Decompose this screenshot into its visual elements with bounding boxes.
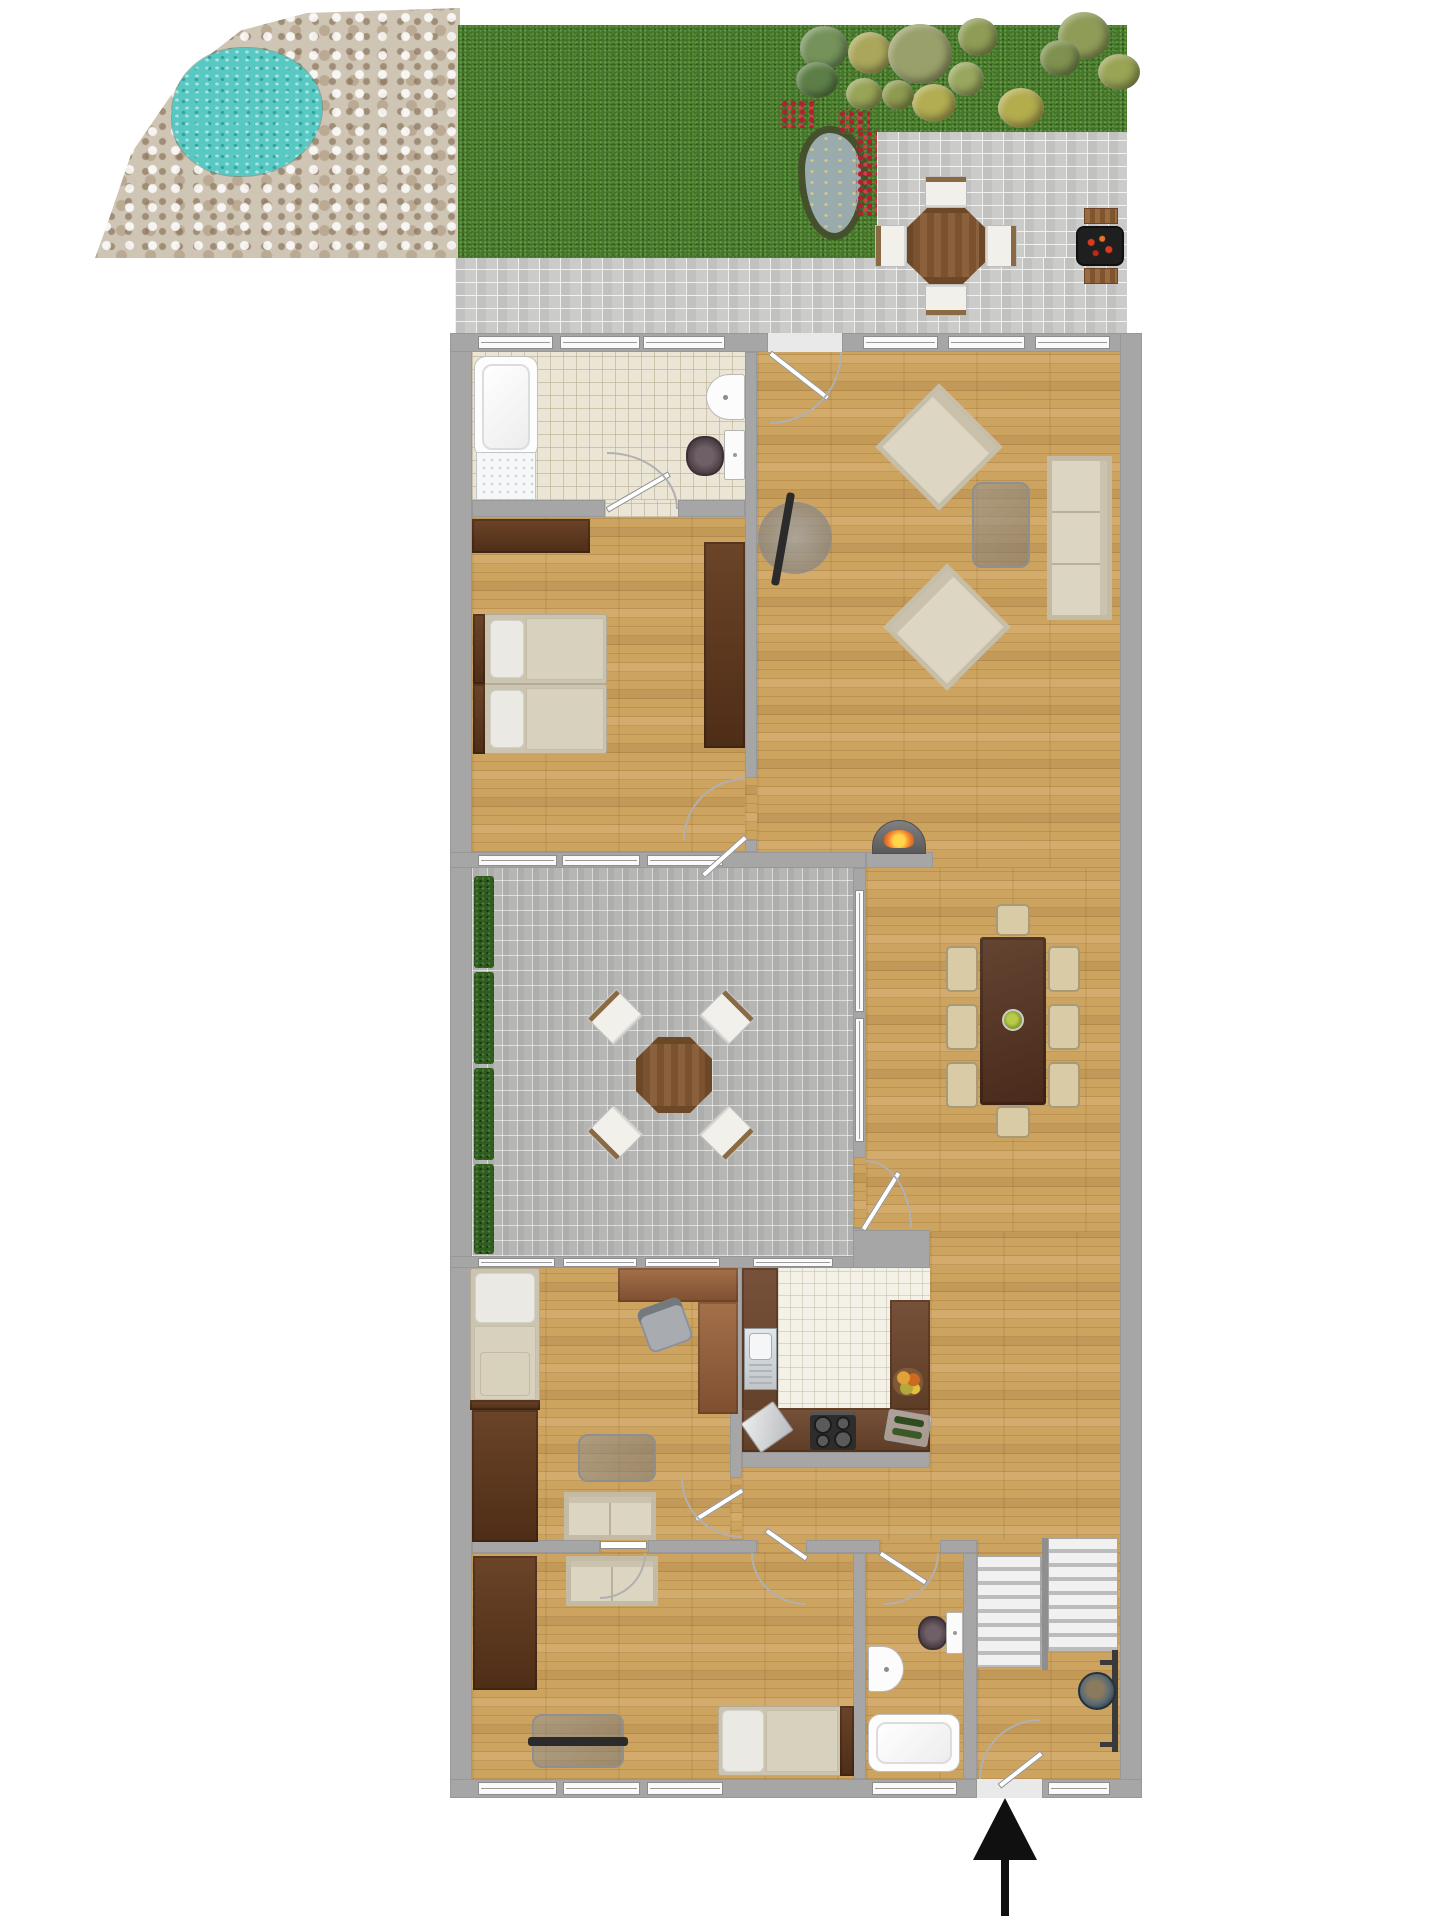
bathtub2 bbox=[868, 1714, 960, 1772]
tv-table-bar bbox=[528, 1737, 628, 1746]
bedroom-dresser bbox=[472, 519, 590, 553]
window-top-5 bbox=[948, 336, 1025, 349]
shrub-12 bbox=[998, 88, 1044, 128]
bed-1-pillow bbox=[490, 620, 524, 678]
kitchen-sink bbox=[744, 1328, 777, 1390]
doorway-fill-6 bbox=[880, 1540, 940, 1553]
stairs-divider bbox=[1042, 1538, 1048, 1670]
bed-2-headboard bbox=[473, 684, 485, 754]
fruit-bowl bbox=[893, 1368, 923, 1396]
dining-chair-w3 bbox=[946, 1062, 978, 1108]
stairs-flight-left bbox=[977, 1556, 1041, 1668]
bottomroom-wardrobe bbox=[473, 1556, 537, 1690]
shrub-2 bbox=[796, 62, 838, 98]
bathtub bbox=[474, 356, 538, 458]
stairs-flight-right bbox=[1048, 1538, 1118, 1652]
outdoor-chair-west bbox=[875, 225, 907, 267]
desk-top bbox=[618, 1268, 738, 1302]
window-bedroom-patio-1 bbox=[478, 855, 557, 866]
wall-kitchen-south bbox=[742, 1452, 930, 1468]
bathroom-sink bbox=[706, 374, 745, 420]
dining-chair-e3 bbox=[1048, 1062, 1080, 1108]
north-arrow-head bbox=[973, 1798, 1037, 1860]
paver-walkway bbox=[455, 258, 1127, 335]
outdoor-chair-south bbox=[925, 284, 967, 316]
sofa-three-seat bbox=[1047, 456, 1112, 620]
bedroom-wardrobe bbox=[704, 542, 745, 748]
toilet2-tank bbox=[946, 1612, 963, 1654]
bottom-bed-pillow bbox=[722, 1710, 764, 1772]
shrub-4 bbox=[888, 24, 952, 84]
pond-flowers-3 bbox=[856, 130, 878, 216]
north-arrow-stem bbox=[1001, 1858, 1009, 1916]
window-top-1 bbox=[478, 336, 553, 349]
window-patio-south-1 bbox=[478, 1258, 555, 1267]
window-top-4 bbox=[863, 336, 938, 349]
toilet2-seat bbox=[918, 1616, 948, 1650]
desk-side bbox=[698, 1302, 738, 1414]
shrub-3 bbox=[848, 32, 892, 74]
wall-mid-south-d bbox=[940, 1540, 977, 1553]
window-bedroom-patio-2 bbox=[562, 855, 640, 866]
office-loveseat bbox=[564, 1492, 656, 1540]
shrub-6 bbox=[948, 62, 984, 96]
hedge-row-3 bbox=[474, 1068, 494, 1160]
wall-right bbox=[1120, 333, 1142, 1798]
doorway-fill-2 bbox=[853, 1158, 866, 1228]
wall-bath-bedroom-east-a bbox=[745, 352, 757, 778]
office-bed-cushion bbox=[480, 1352, 530, 1396]
floor-plan-canvas bbox=[0, 0, 1440, 1920]
office-coffee-table bbox=[578, 1434, 656, 1482]
bed-2-blanket bbox=[526, 688, 604, 750]
wall-bottomroom-bath2 bbox=[853, 1553, 866, 1779]
dining-chair-n bbox=[996, 904, 1030, 936]
office-bed-pillow bbox=[475, 1273, 535, 1323]
hall-floor bbox=[930, 1232, 1120, 1553]
hedge-row-4 bbox=[474, 1164, 494, 1254]
dining-chair-e1 bbox=[1048, 946, 1080, 992]
shrub-9 bbox=[846, 78, 882, 110]
window-top-6 bbox=[1035, 336, 1110, 349]
bottom-bed-foot bbox=[840, 1706, 854, 1776]
window-patio-south-2 bbox=[563, 1258, 637, 1267]
doorway-fill-1 bbox=[745, 778, 757, 840]
coat-rack-arm-2 bbox=[1100, 1742, 1114, 1747]
shrub-8 bbox=[882, 80, 914, 110]
door-leaf-bottomroom-1 bbox=[600, 1541, 647, 1549]
toilet-seat bbox=[686, 436, 724, 476]
wall-fireplace-stub bbox=[866, 852, 933, 868]
grill-body bbox=[1076, 226, 1124, 266]
hedge-row-2 bbox=[474, 972, 494, 1064]
dining-chair-w2 bbox=[946, 1004, 978, 1050]
bottom-bed-blanket bbox=[766, 1710, 838, 1772]
dining-chair-e2 bbox=[1048, 1004, 1080, 1050]
office-bed-foot bbox=[470, 1400, 540, 1410]
pond-flowers-1 bbox=[780, 100, 816, 128]
toilet-tank bbox=[724, 430, 745, 480]
grill-shelf-bottom bbox=[1084, 268, 1118, 284]
wall-kitchen-north-stub bbox=[853, 1230, 930, 1268]
bed-1-headboard bbox=[473, 614, 485, 684]
window-bottom-4 bbox=[872, 1782, 957, 1795]
window-top-2 bbox=[560, 336, 640, 349]
outdoor-chair-east bbox=[985, 225, 1017, 267]
dining-chair-s bbox=[996, 1106, 1030, 1138]
wall-bath-bedroom-east-b bbox=[745, 840, 757, 852]
outdoor-chair-north bbox=[925, 176, 967, 208]
wall-left bbox=[450, 333, 472, 1798]
dining-chair-w1 bbox=[946, 946, 978, 992]
coat-rack-arm-1 bbox=[1100, 1660, 1114, 1665]
shrub-11 bbox=[1098, 54, 1140, 90]
round-glass-table bbox=[758, 502, 832, 574]
wall-mid-south-c bbox=[806, 1540, 880, 1553]
wall-mid-south-b bbox=[648, 1540, 757, 1553]
window-patio-east-2 bbox=[855, 1018, 864, 1142]
shrub-5 bbox=[958, 18, 998, 56]
window-bottom-2 bbox=[563, 1782, 640, 1795]
window-bottom-3 bbox=[647, 1782, 723, 1795]
grill-shelf-top bbox=[1084, 208, 1118, 224]
shower bbox=[476, 452, 536, 500]
hedge-row-1 bbox=[474, 876, 494, 968]
window-patio-east-1 bbox=[855, 890, 864, 1012]
shrub-7 bbox=[912, 84, 956, 122]
coffee-table-glass bbox=[972, 482, 1030, 568]
wall-bath2-entry bbox=[963, 1553, 977, 1779]
window-bottom-5 bbox=[1048, 1782, 1110, 1795]
window-patio-south-4 bbox=[753, 1258, 833, 1267]
wall-bathroom-south-b bbox=[678, 500, 745, 517]
window-bottom-1 bbox=[478, 1782, 557, 1795]
patio-table bbox=[636, 1037, 712, 1113]
coat-rack-basket bbox=[1078, 1672, 1116, 1710]
office-wardrobe bbox=[472, 1410, 538, 1542]
bed-1-blanket bbox=[526, 618, 604, 680]
bed-2-pillow bbox=[490, 690, 524, 748]
window-top-3 bbox=[643, 336, 725, 349]
kitchen-stove bbox=[810, 1412, 856, 1450]
threshold-living-entrance bbox=[768, 333, 842, 352]
shrub-13 bbox=[1040, 40, 1080, 76]
window-patio-south-3 bbox=[645, 1258, 720, 1267]
dining-bowl bbox=[1002, 1009, 1024, 1031]
wall-bathroom-south-a bbox=[472, 500, 605, 517]
outdoor-dining-table bbox=[906, 206, 986, 284]
